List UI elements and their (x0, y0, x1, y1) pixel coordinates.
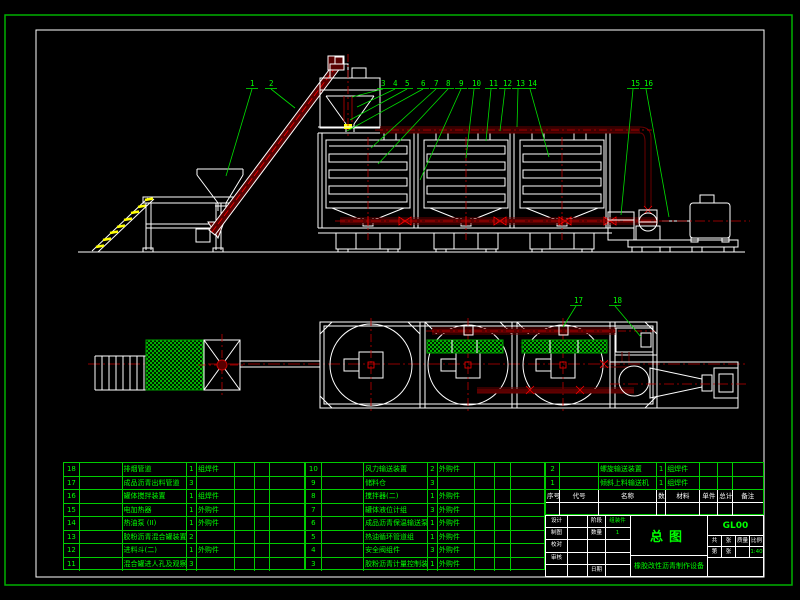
hopper-plan (198, 334, 246, 396)
bom-cell: 5 (306, 531, 322, 544)
signature-row: 审核 (546, 553, 630, 565)
bom-cell (322, 477, 364, 490)
bom-row: 序号代号名称数量材料单件总计备注 (546, 490, 763, 503)
title-info-block: GL00 共张质量比例 第张1:40 (708, 516, 763, 576)
bom-cell (560, 477, 599, 490)
bom-cell (80, 517, 123, 530)
bom-cell (511, 477, 544, 490)
motor-side (690, 195, 730, 242)
bom-cell: 2 (546, 463, 560, 476)
bom-cell (475, 517, 495, 530)
top-pipe-plan (426, 326, 655, 335)
bom-cell (80, 544, 123, 557)
bom-cell: 1 (428, 531, 438, 544)
bom-cell: 17 (64, 477, 80, 490)
callout-label-18: 18 (613, 296, 623, 305)
bom-cell: 1 (428, 517, 438, 530)
signature-cell (568, 516, 588, 527)
bom-cell (495, 463, 511, 476)
bom-cell (235, 517, 255, 530)
callout-leader (420, 89, 461, 180)
bom-cell: 罐体搅拌装置 (123, 490, 187, 503)
bom-row: 15电加热器1外购件 (64, 504, 304, 518)
bom-row: 13胶粉沥青混合罐装置2 (64, 531, 304, 545)
signature-cell (606, 540, 629, 551)
bom-cell (475, 504, 495, 517)
bom-row: 7罐体液位计组3外购件 (306, 504, 544, 518)
callout-leader (517, 89, 518, 127)
bom-cell: 热油泵 (II) (123, 517, 187, 530)
bom-cell: 外购件 (438, 490, 476, 503)
callout-label-14: 14 (528, 79, 538, 88)
bom-cell: 风力输送装置 (364, 463, 428, 476)
bom-cell (197, 477, 235, 490)
bom-cell: 外购件 (438, 517, 476, 530)
bom-cell (322, 504, 364, 517)
bom-cell: 12 (64, 544, 80, 557)
bom-cell: 电加热器 (123, 504, 187, 517)
title-block: 设计阶段组装件制图数量1校对审核日期 总图 橡胶改性沥青制作设备 GL00 共张… (545, 515, 764, 577)
bom-cell (197, 558, 235, 572)
callout-label-9: 9 (459, 79, 464, 88)
signature-cell (568, 528, 588, 539)
bom-cell (322, 517, 364, 530)
bom-cell (495, 504, 511, 517)
bom-cell (255, 544, 271, 557)
signature-cell: 制图 (546, 528, 568, 539)
bom-cell: 混合罐进人孔及观察装置 (123, 558, 187, 572)
bom-cell: 14 (64, 517, 80, 530)
bom-cell (495, 490, 511, 503)
callout-label-3: 3 (381, 79, 386, 88)
bom-cell: 排烟管道 (123, 463, 187, 476)
bom-cell (80, 463, 123, 476)
bom-row: 10风力输送装置2外购件 (306, 463, 544, 477)
bom-cell (270, 531, 304, 544)
bom-row: 11混合罐进人孔及观察装置3 (64, 558, 304, 572)
bom-group-left: 18排烟管道1组焊件17成品沥青出料管道316罐体搅拌装置1组焊件15电加热器1… (63, 462, 305, 570)
callout-label-15: 15 (631, 79, 640, 88)
bom-cell (255, 517, 271, 530)
bom-cell: 总计 (718, 490, 732, 502)
bom-cell (700, 477, 718, 490)
bom-cell: 外购件 (438, 504, 476, 517)
bom-cell (475, 463, 495, 476)
bom-cell (475, 558, 495, 572)
bom-row: 4安全阀组件3外购件 (306, 544, 544, 558)
callout-label-5: 5 (405, 79, 410, 88)
signature-cell: 数量 (588, 528, 606, 539)
bom-cell (80, 558, 123, 572)
grating-platform (146, 340, 203, 390)
bom-cell (80, 531, 123, 544)
bom-cell (255, 490, 271, 503)
bom-cell (733, 463, 763, 476)
signature-row: 制图数量1 (546, 528, 630, 540)
bom-cell: 组焊件 (197, 490, 235, 503)
signature-row: 日期 (546, 565, 630, 576)
signature-cell: 日期 (588, 565, 606, 576)
bom-cell: 1 (546, 477, 560, 490)
bom-cell (255, 477, 271, 490)
callout-leader (271, 89, 295, 108)
bom-cell: 1 (428, 490, 438, 503)
bom-cell (495, 517, 511, 530)
bom-cell: 数量 (657, 490, 666, 502)
signature-cell: 阶段 (588, 516, 606, 527)
bom-cell (495, 558, 511, 572)
bom-cell (80, 490, 123, 503)
bom-cell (235, 490, 255, 503)
bom-cell (511, 490, 544, 503)
bom-row: 2螺旋输送装置1组焊件 (546, 463, 763, 477)
bom-cell: 2 (428, 463, 438, 476)
bom-cell (255, 504, 271, 517)
scale-info-row: 第张1:40 (708, 547, 763, 558)
drawing-title: 总图 (631, 516, 707, 556)
bom-cell: 1 (187, 517, 197, 530)
bom-cell: 1 (187, 544, 197, 557)
bom-cell (475, 477, 495, 490)
callout-label-17: 17 (574, 296, 583, 305)
bom-group-middle: 10风力输送装置2外购件9储料仓38搅拌器(二)1外购件7罐体液位计组3外购件6… (305, 462, 545, 570)
bom-cell: 2 (187, 531, 197, 544)
title-name-block: 总图 橡胶改性沥青制作设备 (631, 516, 708, 576)
bom-cell (80, 504, 123, 517)
callout-label-10: 10 (472, 79, 482, 88)
bom-cell (80, 477, 123, 490)
bom-cell (270, 517, 304, 530)
drawing-number: GL00 (708, 516, 763, 536)
bom-cell (270, 544, 304, 557)
bom-cell: 材料 (666, 490, 700, 502)
signature-cell (568, 565, 588, 576)
signature-cell (546, 565, 568, 576)
bom-cell: 3 (187, 558, 197, 572)
info-cell: 张 (722, 536, 736, 546)
bom-cell: 4 (306, 544, 322, 557)
bom-cell (235, 558, 255, 572)
feed-platform (143, 197, 238, 252)
screw-conveyor (209, 56, 344, 235)
product-name: 橡胶改性沥青制作设备 (631, 556, 707, 576)
callout-leader (466, 89, 474, 158)
bom-cell (322, 490, 364, 503)
bom-cell: 备注 (733, 490, 763, 502)
bom-row: 18排烟管道1组焊件 (64, 463, 304, 477)
bom-cell (495, 544, 511, 557)
bom-cell (475, 531, 495, 544)
callout-label-11: 11 (489, 79, 498, 88)
bom-cell (235, 477, 255, 490)
bom-cell: 7 (306, 504, 322, 517)
bom-cell: 10 (306, 463, 322, 476)
bom-cell (270, 504, 304, 517)
bom-cell (255, 558, 271, 572)
bom-cell: 1 (428, 558, 438, 572)
bom-cell (511, 463, 544, 476)
bom-row: 17成品沥青出料管道3 (64, 477, 304, 491)
bom-cell: 3 (306, 558, 322, 572)
bom-cell: 搅拌器(二) (364, 490, 428, 503)
callout-leader (646, 89, 669, 217)
bom-cell (235, 544, 255, 557)
bom-cell (511, 517, 544, 530)
bom-cell: 1 (657, 463, 666, 476)
bom-cell: 成品沥青出料管道 (123, 477, 187, 490)
bom-cell: 进料斗(二) (123, 544, 187, 557)
signature-cell (606, 565, 629, 576)
ladder-plan (95, 356, 148, 390)
bom-cell: 3 (428, 544, 438, 557)
cad-sheet: 123456789101112131415161718 18排烟管道1组焊件17… (0, 0, 800, 600)
bom-cell: 3 (428, 504, 438, 517)
bom-row: 14热油泵 (II)1外购件 (64, 517, 304, 531)
bom-row: 8搅拌器(二)1外购件 (306, 490, 544, 504)
bom-row: 9储料仓3 (306, 477, 544, 491)
bom-cell: 8 (306, 490, 322, 503)
bom-cell (511, 531, 544, 544)
bom-cell (475, 490, 495, 503)
filter-box (608, 212, 634, 240)
info-cell: 质量 (736, 536, 750, 546)
signature-cell (568, 553, 588, 564)
bom-cell (560, 463, 599, 476)
bom-cell: 9 (306, 477, 322, 490)
callout-leader (530, 89, 549, 157)
stairs (92, 198, 154, 252)
bom-cell: 序号 (546, 490, 560, 502)
bom-cell: 储料仓 (364, 477, 428, 490)
info-cell: 1:40 (750, 547, 763, 557)
pump-plan (610, 362, 748, 408)
bom-cell: 安全阀组件 (364, 544, 428, 557)
bom-cell: 6 (306, 517, 322, 530)
bom-cell: 11 (64, 558, 80, 572)
bom-cell: 15 (64, 504, 80, 517)
bom-cell (495, 477, 511, 490)
bom-cell: 18 (64, 463, 80, 476)
bom-cell (322, 531, 364, 544)
bom-cell (270, 477, 304, 490)
signature-cell (588, 540, 606, 551)
bom-group-right: 2螺旋输送装置1组焊件1倾斜上料输送机1组焊件序号代号名称数量材料单件总计备注 (545, 462, 764, 515)
bom-cell: 3 (187, 477, 197, 490)
bom-cell (255, 463, 271, 476)
bom-cell (511, 504, 544, 517)
bom-cell: 成品沥青保温输送泵 (364, 517, 428, 530)
bom-row: 3胶粉沥青计量控制装置1外购件 (306, 558, 544, 572)
callout-label-12: 12 (503, 79, 512, 88)
bom-cell (255, 531, 271, 544)
signature-cell (606, 553, 629, 564)
info-cell (736, 547, 750, 557)
callout-label-4: 4 (393, 79, 398, 88)
bom-cell (235, 463, 255, 476)
callout-label-13: 13 (516, 79, 525, 88)
bom-cell: 1 (187, 504, 197, 517)
signature-cell: 审核 (546, 553, 568, 564)
signature-cell: 组装件 (606, 516, 629, 527)
info-cell: 共 (708, 536, 722, 546)
callout-label-6: 6 (421, 79, 426, 88)
callout-label-1: 1 (250, 79, 255, 88)
bom-cell: 16 (64, 490, 80, 503)
bom-cell (511, 544, 544, 557)
bom-row: 6成品沥青保温输送泵1外购件 (306, 517, 544, 531)
signature-cell: 1 (606, 528, 629, 539)
bom-cell (733, 477, 763, 490)
bom-cell: 外购件 (197, 504, 235, 517)
signature-cell: 设计 (546, 516, 568, 527)
bom-cell: 外购件 (438, 531, 476, 544)
bom-cell: 倾斜上料输送机 (599, 477, 657, 490)
bom-cell: 代号 (560, 490, 599, 502)
bom-row: 5热油循环管道组1外购件 (306, 531, 544, 545)
bom-cell: 外购件 (197, 544, 235, 557)
callout-leader (621, 89, 633, 215)
bom-cell: 名称 (599, 490, 657, 502)
bom-cell: 1 (187, 490, 197, 503)
bom-cell: 胶粉沥青混合罐装置 (123, 531, 187, 544)
bom-cell: 热油循环管道组 (364, 531, 428, 544)
callout-leader (226, 89, 252, 176)
info-cell: 比例 (750, 536, 763, 546)
bom-row: 1倾斜上料输送机1组焊件 (546, 477, 763, 491)
title-block-empty (708, 558, 763, 576)
callout-label-2: 2 (269, 79, 274, 88)
bom-cell (235, 504, 255, 517)
signature-row: 校对 (546, 540, 630, 552)
plan-view (88, 318, 748, 411)
bom-cell (438, 477, 476, 490)
bom-cell: 外购件 (438, 544, 476, 557)
frame-plan (320, 322, 657, 408)
bom-cell (197, 531, 235, 544)
bom-cell: 组焊件 (666, 477, 700, 490)
bom-cell (270, 463, 304, 476)
bom-cell: 罐体液位计组 (364, 504, 428, 517)
bom-cell (700, 463, 718, 476)
bom-cell (270, 558, 304, 572)
bom-cell: 外购件 (197, 517, 235, 530)
info-cell: 张 (722, 547, 736, 557)
bom-cell (475, 544, 495, 557)
bom-cell: 胶粉沥青计量控制装置 (364, 558, 428, 572)
bom-cell: 组焊件 (666, 463, 700, 476)
bom-cell: 螺旋输送装置 (599, 463, 657, 476)
signature-block: 设计阶段组装件制图数量1校对审核日期 (546, 516, 631, 576)
callout-leader (350, 89, 407, 120)
bom-cell: 组焊件 (197, 463, 235, 476)
bom-cell: 13 (64, 531, 80, 544)
pump-side (636, 210, 690, 240)
signature-row: 设计阶段组装件 (546, 516, 630, 528)
bom-cell: 单件 (700, 490, 718, 502)
info-cell: 第 (708, 547, 722, 557)
signature-cell (568, 540, 588, 551)
bom-cell (322, 463, 364, 476)
callout-label-8: 8 (446, 79, 451, 88)
bom-cell (322, 558, 364, 572)
bom-cell: 外购件 (438, 558, 476, 572)
bom-row: 12进料斗(二)1外购件 (64, 544, 304, 558)
callout-label-16: 16 (644, 79, 654, 88)
bom-cell (322, 544, 364, 557)
callout-leader (357, 89, 395, 107)
bom-cell (718, 477, 732, 490)
signature-cell (588, 553, 606, 564)
bom-cell: 3 (428, 477, 438, 490)
bom-cell (270, 490, 304, 503)
bom-cell: 1 (657, 477, 666, 490)
bom-cell (235, 531, 255, 544)
bom-cell: 外购件 (438, 463, 476, 476)
bom-cell (511, 558, 544, 572)
sheet-info-row: 共张质量比例 (708, 536, 763, 547)
callout-label-7: 7 (434, 79, 439, 88)
bom-cell: 1 (187, 463, 197, 476)
callout-leader (371, 89, 436, 148)
bom-cell (495, 531, 511, 544)
callout-leader (500, 89, 505, 131)
signature-cell: 校对 (546, 540, 568, 551)
bom-row: 16罐体搅拌装置1组焊件 (64, 490, 304, 504)
bom-cell (718, 463, 732, 476)
callout-leader (563, 306, 576, 327)
